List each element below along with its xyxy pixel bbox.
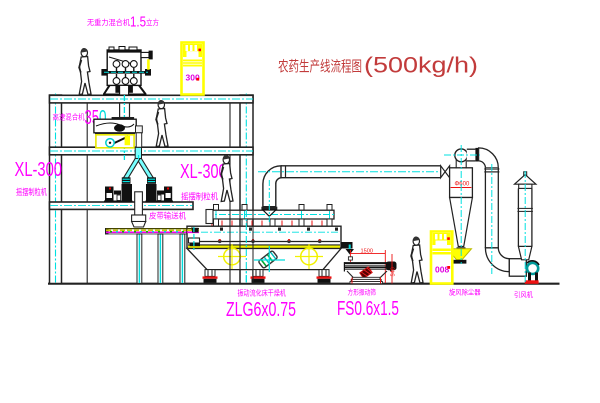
svg-text:方形振动筛: 方形振动筛 xyxy=(348,288,377,297)
svg-text:立方: 立方 xyxy=(146,17,159,27)
svg-text:(500kg/h): (500kg/h) xyxy=(364,53,478,78)
svg-text:农药生产线流程图: 农药生产线流程图 xyxy=(278,59,362,76)
svg-text:008: 008 xyxy=(435,265,449,275)
svg-text:摇摆制粒机: 摇摆制粒机 xyxy=(181,192,218,202)
svg-text:摇摆制粒机: 摇摆制粒机 xyxy=(16,187,47,197)
svg-text:高速混合机: 高速混合机 xyxy=(53,112,85,122)
svg-text:无重力混合机: 无重力混合机 xyxy=(87,17,130,27)
svg-text:300: 300 xyxy=(186,73,200,83)
svg-text:皮带输送机: 皮带输送机 xyxy=(149,211,186,221)
svg-text:XL-300: XL-300 xyxy=(180,161,227,183)
svg-text:Φ600: Φ600 xyxy=(455,182,470,188)
svg-text:振动流化床干燥机: 振动流化床干燥机 xyxy=(238,288,287,298)
svg-text:540: 540 xyxy=(391,267,397,276)
svg-text:ZLG6x0.75: ZLG6x0.75 xyxy=(226,299,296,321)
svg-text:引风机: 引风机 xyxy=(514,290,533,299)
svg-text:旋风除尘器: 旋风除尘器 xyxy=(449,287,481,296)
svg-text:1500: 1500 xyxy=(361,248,373,254)
svg-text:FS0.6x1.5: FS0.6x1.5 xyxy=(337,298,399,320)
svg-text:XL-300: XL-300 xyxy=(15,159,63,181)
svg-text:1.5: 1.5 xyxy=(130,14,146,31)
